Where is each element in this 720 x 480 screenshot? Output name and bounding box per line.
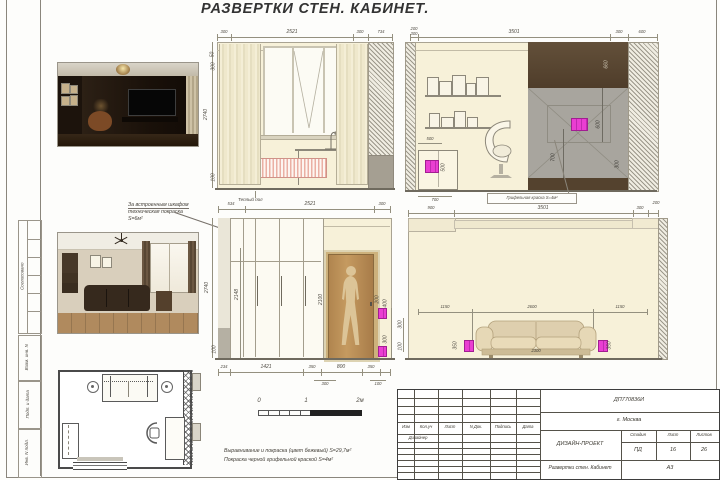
margin-box-inv: Инв. N подл.: [18, 428, 42, 478]
cornice-line: [415, 50, 528, 51]
dim-label: 700: [552, 153, 557, 161]
dim-line: [218, 372, 390, 373]
dim-tick: [633, 210, 634, 217]
plan-column: [192, 423, 201, 441]
leather-chair: [88, 111, 112, 131]
scale-label: 2м: [356, 398, 363, 404]
dim-tick: [362, 369, 363, 376]
curtain-left: [219, 44, 261, 185]
scale-segment-dark: [310, 410, 362, 416]
wardrobe-top-divider: [231, 261, 321, 262]
wardrobe-door-line: [303, 219, 304, 357]
plan-chair: [143, 421, 163, 445]
tb-designer: Дизайнер: [409, 436, 428, 440]
side-table: [156, 291, 172, 311]
plan-radiator: [77, 457, 123, 461]
scale-segment-light: [258, 410, 312, 416]
plan-sofa-arm: [147, 376, 148, 397]
dim-label: 100: [213, 345, 218, 353]
dim-label: 300: [384, 335, 389, 343]
dim-line-vertical: [602, 88, 603, 142]
photo-frame: [70, 85, 78, 94]
bookshelf: [62, 253, 78, 293]
dim-label: 200: [653, 201, 660, 205]
window-mullion: [169, 243, 170, 291]
approval-block: Согласовано: [18, 220, 42, 334]
grid-line: [28, 239, 41, 240]
dim-label: 2600: [527, 305, 536, 309]
dim-label: 300: [399, 320, 404, 328]
dim-label: 734: [378, 30, 385, 34]
picture-frame: [429, 113, 440, 128]
ceiling-soffit: [408, 218, 456, 232]
dim-label-height: 2740: [204, 109, 209, 120]
dim-line-vertical: [391, 308, 392, 358]
wardrobe-door-line: [255, 219, 256, 357]
scale-label: 0: [257, 398, 260, 404]
dim-tick: [657, 34, 658, 41]
photo-curtain: [186, 76, 198, 134]
photo-floor: [58, 313, 198, 333]
dim-line: [408, 213, 658, 214]
dim-label: 2148: [235, 289, 240, 300]
tb-col-izm: Изм: [402, 425, 410, 429]
tv-panel: [128, 89, 176, 116]
tb-project-code: ДП770836И: [614, 398, 644, 404]
dim-label: 3501: [508, 30, 519, 35]
floor-line: [405, 190, 657, 192]
plan-wardrobe-dashed: [68, 425, 70, 455]
tb-col-podpis: Подпись: [495, 425, 512, 429]
tb-line: [398, 454, 540, 455]
wall-return-shadow: [218, 328, 230, 358]
dim-tick: [321, 369, 322, 376]
picture-frame: [427, 77, 439, 96]
elevation-sofa-wall: 900 3501 300 200 1150 2600 1150 2300: [400, 200, 668, 392]
photo-curtain: [188, 241, 196, 293]
dim-tick: [390, 206, 391, 213]
approval-label-cell: Согласовано: [19, 221, 28, 333]
dim-label: 2521: [286, 30, 297, 35]
door-handle: [370, 302, 372, 306]
dim-label: 200: [376, 295, 381, 303]
photo-frame: [61, 96, 70, 106]
dim-label: 3501: [537, 206, 548, 211]
ceiling-soffit: [632, 218, 660, 229]
tb-line: [690, 430, 691, 460]
tb-sheets-label: Листов: [696, 433, 711, 437]
floor-line: [405, 358, 662, 360]
chandelier-stem: [121, 233, 122, 241]
tb-line: [540, 460, 621, 461]
egg-armchair: [480, 118, 522, 186]
dim-label: 2100: [319, 294, 324, 305]
dim-tick: [418, 34, 419, 41]
dim-label: 1150: [440, 305, 449, 309]
dim-tick: [454, 210, 455, 217]
tb-col-data: Дата: [522, 425, 533, 429]
scale-tick: [279, 410, 280, 415]
tb-line: [656, 430, 657, 460]
tb-line: [621, 442, 719, 443]
wardrobe: [230, 218, 324, 360]
tb-stage-label: Стадия: [630, 433, 646, 437]
light-center: [165, 385, 168, 388]
plan-window: [73, 462, 127, 470]
floor-plan: [45, 365, 207, 477]
floor-line: [215, 358, 395, 360]
dim-tick: [218, 206, 219, 213]
dim-label: 1150: [615, 305, 624, 309]
wall-section-hatch: [628, 42, 659, 192]
plan-sofa: [102, 374, 158, 402]
dim-label: 1421: [260, 365, 271, 370]
elevation-window-wall: 300 2521 300 734 2740 50 300: [210, 30, 406, 208]
elevation-wardrobe-door-wall: 534 2521 300 2100 200 400: [210, 200, 406, 392]
picture-frame: [452, 75, 466, 96]
photo-interior-cabinet-2: [57, 232, 199, 334]
dim-label: 300: [637, 206, 644, 210]
plan-ceiling-light: [161, 381, 173, 393]
tb-line: [621, 460, 719, 461]
dim-tick: [368, 34, 369, 41]
dim-label: 350: [608, 341, 613, 349]
tv-console: [122, 117, 178, 122]
tb-sheet-value: 16: [670, 448, 676, 454]
socket-outlet: [378, 308, 387, 319]
dim-label: 300: [411, 32, 418, 36]
paint-note-line: Выравнивание и покраска (цвет бежевый) S…: [224, 449, 351, 454]
chalkboard-panel: [528, 88, 628, 178]
tb-line: [540, 390, 541, 479]
picture-frame: [439, 81, 452, 96]
tb-project-name: ДИЗАЙН-ПРОЕКТ: [557, 442, 604, 448]
photo-frame: [102, 257, 112, 268]
tb-line: [398, 442, 540, 443]
tb-col-koluch: Кол.уч: [420, 425, 433, 429]
tb-doc-title: Развертки стен. Кабинет: [548, 466, 611, 471]
plan-sofa-cushion: [128, 381, 129, 397]
tb-sheets-value: 26: [701, 448, 707, 454]
dim-label: 300: [322, 382, 329, 386]
tb-line: [398, 398, 540, 399]
door-leaf: [328, 254, 374, 360]
wood-panel: [528, 42, 628, 88]
tb-stage-value: ПД: [634, 448, 642, 454]
margin-box-vzam: Взам. инв. N: [18, 335, 42, 382]
dim-tick: [245, 206, 246, 213]
dim-label: 300: [212, 62, 217, 70]
photo-frame: [90, 255, 101, 268]
dim-line: [218, 209, 390, 210]
dim-tick: [217, 34, 218, 41]
dim-tick: [408, 210, 409, 217]
scale-label: 1: [304, 398, 307, 404]
dim-tick: [658, 210, 659, 217]
dim-tick: [303, 369, 304, 376]
scale-tick: [268, 410, 269, 415]
plan-ceiling-light: [87, 381, 99, 393]
dim-line-vertical: [240, 248, 241, 358]
dim-tick: [231, 34, 232, 41]
tb-format: А3: [667, 466, 674, 472]
dim-label: 534: [228, 202, 235, 206]
photo-interior-cabinet-1: [57, 62, 199, 147]
tb-city: г. Москва: [617, 418, 642, 424]
curtain-niche: [454, 220, 634, 229]
drawing-sheet: Согласовано Взам. инв. N Подп. и дата Ин…: [0, 0, 720, 480]
plan-window-line: [73, 465, 127, 466]
dim-label: 100: [399, 342, 404, 350]
dark-sofa: [84, 285, 150, 311]
dim-tick: [390, 369, 391, 376]
dim-tick: [230, 369, 231, 376]
dim-label: 350: [309, 365, 316, 369]
dim-label: 300: [357, 30, 364, 34]
dim-tick: [628, 34, 629, 41]
margin-box-podp: Подп. и дата: [18, 380, 42, 430]
scale-tick: [300, 410, 301, 415]
elevation-chalkboard-wall: 200 300 3501 300 600 500 500: [405, 30, 663, 212]
curtain-right: [336, 44, 368, 185]
socket-outlet: [571, 118, 588, 131]
dim-label: 900: [428, 206, 435, 210]
photo-frame: [61, 83, 70, 94]
dim-line-vertical: [212, 218, 213, 358]
plan-column: [192, 373, 201, 391]
dim-label-sofa-width: 2300: [531, 349, 540, 353]
dim-label: 500: [442, 163, 447, 171]
wardrobe-handle: [257, 276, 258, 306]
chandelier: [116, 64, 130, 75]
dim-line: [418, 143, 442, 144]
photo-floor: [58, 134, 198, 146]
dim-label: 300: [379, 202, 386, 206]
dim-label: 100: [375, 382, 382, 386]
page-title: РАЗВЕРТКИ СТЕН. КАБИНЕТ.: [201, 1, 429, 17]
grid-line: [28, 275, 41, 276]
sofa-cushion-line: [128, 289, 129, 307]
tb-line: [398, 472, 540, 473]
tb-line: [398, 422, 540, 423]
dim-label: 300: [616, 160, 621, 168]
tb-line: [398, 460, 540, 461]
wardrobe-door-line: [279, 219, 280, 357]
picture-frame: [466, 83, 476, 96]
dim-label: 350: [454, 341, 459, 349]
picture-frame: [476, 77, 489, 96]
tb-line: [398, 414, 540, 415]
tb-line: [398, 466, 540, 467]
dim-tick: [374, 206, 375, 213]
dim-label: 234: [221, 365, 228, 369]
margin-box-label: Подп. и дата: [26, 390, 31, 418]
floor-line: [215, 188, 395, 190]
scale-bar: 0 1 2м: [258, 398, 370, 418]
dim-line: [410, 37, 657, 38]
tb-line: [621, 430, 622, 479]
light-center: [91, 385, 94, 388]
dim-tick: [380, 369, 381, 376]
grid-line: [28, 311, 41, 312]
grid-line: [28, 257, 41, 258]
grid-line: [28, 293, 41, 294]
dim-tick: [392, 34, 393, 41]
dim-label: 400: [384, 299, 389, 307]
sofa-cushion-line: [106, 289, 107, 307]
photo-frame: [70, 95, 78, 106]
wardrobe-handle: [281, 276, 282, 306]
person-silhouette: [336, 263, 366, 355]
dim-label: 800: [337, 365, 345, 370]
scale-tick: [289, 410, 290, 415]
socket-outlet: [378, 346, 387, 357]
dim-tick: [418, 309, 419, 315]
wall-section-hatch: [368, 42, 394, 157]
wall-section-hatch: [658, 218, 668, 360]
dim-label: 300: [221, 30, 228, 34]
dim-label: 600: [639, 30, 646, 34]
dim-label: 660: [605, 60, 610, 68]
dim-label: 600: [597, 120, 602, 128]
dim-tick: [610, 34, 611, 41]
dim-tick: [648, 210, 649, 217]
socket-outlet: [425, 160, 439, 173]
dim-label-height: 2740: [205, 282, 210, 293]
picture-frame: [467, 117, 478, 128]
tb-line: [398, 448, 540, 449]
margin-box-label: Инв. N подл.: [25, 439, 30, 465]
dim-label: 300: [616, 30, 623, 34]
dim-tick: [647, 309, 648, 315]
wall-section-solid: [368, 155, 394, 190]
tb-col-list: Лист: [445, 425, 456, 429]
plan-desk: [165, 417, 185, 460]
plan-sofa-arm: [110, 376, 111, 397]
dim-label: 500: [427, 137, 434, 141]
dim-line: [418, 312, 647, 313]
dim-line: [217, 37, 392, 38]
wardrobe-door-line: [243, 219, 244, 357]
tb-sheet-label: Лист: [668, 433, 679, 437]
picture-frame: [441, 117, 454, 128]
socket-outlet: [464, 340, 474, 352]
dim-tick: [353, 34, 354, 41]
dim-tick: [218, 369, 219, 376]
margin-box-label: Взам. инв. N: [25, 344, 30, 370]
sofa: [475, 318, 597, 360]
approval-label: Согласовано: [20, 263, 25, 290]
tb-line: [540, 412, 719, 413]
annotation-line: S=6м²: [128, 217, 143, 222]
wood-base-band: [528, 178, 628, 190]
dim-label: 100: [212, 173, 217, 181]
picture-frame: [454, 111, 466, 128]
plan-wardrobe: [62, 423, 79, 459]
tb-line: [540, 430, 719, 431]
tb-line: [398, 406, 540, 407]
photo-window: [150, 243, 192, 293]
title-block: Изм Кол.уч Лист N Док. Подпись Дата Диза…: [397, 389, 720, 480]
dim-label: 50: [210, 52, 215, 58]
paint-note-line: Покраска черной грифельной краской S=4м²: [224, 458, 333, 463]
tb-col-ndok: N Док.: [470, 425, 483, 429]
dim-label: 2521: [304, 202, 315, 207]
wardrobe-handle: [305, 276, 306, 306]
dim-label: 350: [368, 365, 375, 369]
